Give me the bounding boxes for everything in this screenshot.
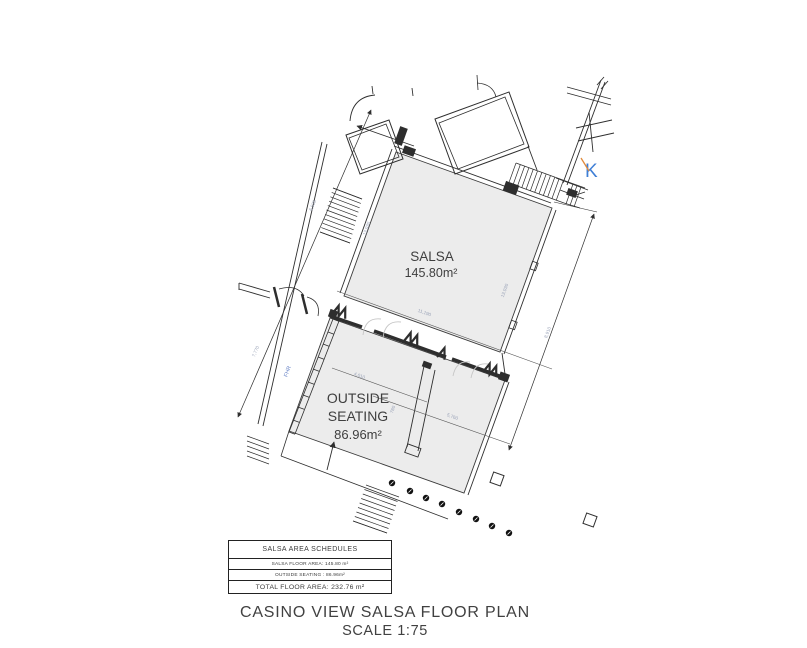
- bollard-icon: [473, 516, 479, 522]
- outside-room-area: 86.96m²: [334, 427, 382, 442]
- schedule-row-salsa: SALSA FLOOR AREA: 145.80 m²: [229, 558, 391, 569]
- area-schedule-table: SALSA AREA SCHEDULES SALSA FLOOR AREA: 1…: [228, 540, 392, 594]
- salsa-room-name: SALSA: [410, 249, 454, 264]
- dim-label: 8,910: [543, 326, 552, 339]
- drawing-scale: SCALE 1:75: [0, 623, 770, 639]
- dim-label: 6,535: [308, 199, 317, 212]
- salsa-room-area: 145.80m²: [405, 266, 458, 280]
- floor-plan-drawing: 6,535 7,770 13,030 11,190 8,910 13,030 4…: [0, 0, 807, 648]
- stairs-left: [320, 188, 362, 243]
- title-block: CASINO VIEW SALSA FLOOR PLAN SCALE 1:75: [0, 604, 770, 639]
- column-square-icon: [583, 513, 597, 527]
- upper-middle-room: [435, 75, 529, 174]
- outside-room-name-1: OUTSIDE: [327, 390, 389, 406]
- section-marker-k: K: [585, 161, 598, 182]
- schedule-row-total: TOTAL FLOOR AREA: 232.76 m²: [229, 580, 391, 593]
- stairs-lower-left: [247, 436, 269, 464]
- dim-label: 7,770: [251, 345, 260, 358]
- outside-room-name-2: SEATING: [328, 408, 388, 424]
- bollard-icon: [489, 523, 495, 529]
- fhr-label: FHR: [283, 365, 293, 378]
- column-square-icon: [490, 472, 504, 486]
- room-outside-seating: [289, 318, 505, 493]
- drawing-title: CASINO VIEW SALSA FLOOR PLAN: [0, 604, 770, 622]
- bollard-icon: [407, 488, 413, 494]
- double-door-left: [274, 287, 319, 316]
- bollard-icon: [423, 495, 429, 501]
- bollard-icon: [389, 480, 395, 486]
- schedule-row-outside: OUTSIDE SEATING : 86.96m²: [229, 569, 391, 580]
- floor-plan-sheet: 6,535 7,770 13,030 11,190 8,910 13,030 4…: [0, 0, 807, 648]
- bollard-icon: [456, 509, 462, 515]
- bollard-icon: [506, 530, 512, 536]
- bollard-icon: [439, 501, 445, 507]
- bollards: [389, 472, 597, 536]
- entrance-arrow-icon: [327, 442, 334, 470]
- schedule-title: SALSA AREA SCHEDULES: [229, 541, 391, 558]
